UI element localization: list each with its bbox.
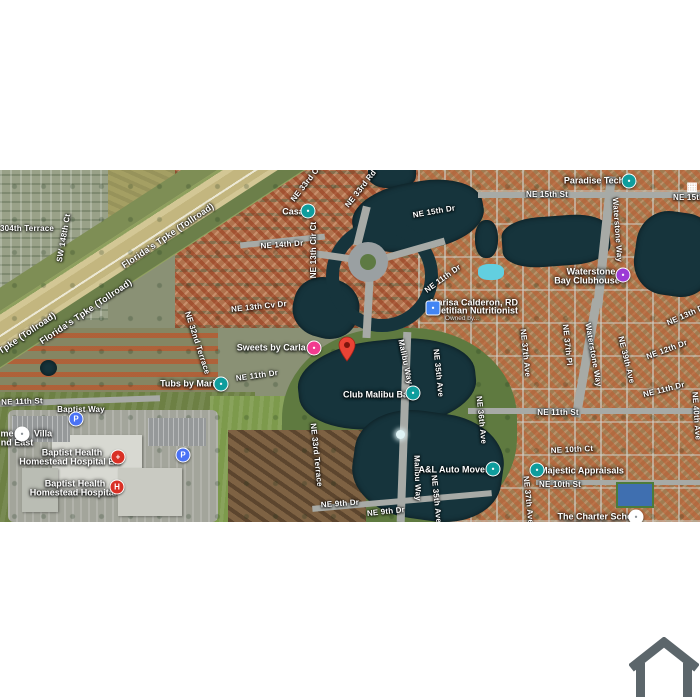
club-malibu-bay-poi-icon[interactable]: • <box>406 386 421 401</box>
road-label: NE 32nd Terrace <box>183 311 211 376</box>
road-label: NE 9th Dr <box>367 506 406 518</box>
er-poi-icon[interactable]: + <box>111 450 126 465</box>
house-logo <box>629 637 699 697</box>
road-label: NE 33rd Rd <box>344 170 378 209</box>
sweets-poi-icon[interactable]: • <box>307 341 322 356</box>
dietitian-poi-icon[interactable]: • <box>426 301 441 316</box>
tubs-poi-icon[interactable]: • <box>214 377 229 392</box>
road-label: NE 39th Ave <box>616 336 635 385</box>
poi-label-club-malibu-bay[interactable]: Club Malibu Bay <box>343 391 413 400</box>
road-label: SW 148th Ct <box>56 213 72 263</box>
dropped-pin[interactable] <box>338 336 356 367</box>
road-label: NE 15th Dr <box>412 204 456 219</box>
road-label: Florida's Tpke (Tollroad) <box>120 202 215 270</box>
poi-label-paradise-tech[interactable]: Paradise Tech <box>564 177 624 186</box>
road-label: NE 10th Ct <box>551 445 594 455</box>
poi-label-sweets[interactable]: Sweets by Carla G <box>237 344 316 353</box>
apartments-grid-icon[interactable]: ▦ <box>686 180 699 193</box>
hospital-poi-icon[interactable]: H <box>110 480 125 495</box>
road-label: NE 13th Dr <box>666 303 700 328</box>
poi-label-movers[interactable]: A&L Auto Movers <box>418 466 493 475</box>
road-label: NE 15th St <box>673 194 700 202</box>
road-label: NE 11th St <box>537 409 579 417</box>
bottom-whitespace <box>0 522 700 700</box>
satellite-map-canvas[interactable]: 304th TerraceSW 148th CtFlorida's Tpke (… <box>0 170 700 522</box>
road-label: NE 10th St <box>539 481 581 489</box>
road-label: NE 36th Ave <box>474 396 487 445</box>
road-label: NE 37th Pl <box>561 324 573 366</box>
road-label: NE 40th Ave <box>690 392 700 441</box>
movers-poi-icon[interactable]: • <box>486 462 501 477</box>
casa-poi-icon[interactable]: • <box>301 204 316 219</box>
road-label: NE 37th Ave <box>518 329 531 378</box>
road-label: NE 35th Ave <box>429 475 442 522</box>
road-label: NE 12th Dr <box>645 339 688 361</box>
top-whitespace <box>0 0 700 170</box>
road-label: NE 11th St <box>1 397 43 406</box>
road-label: 304th Terrace <box>0 225 54 233</box>
house-icon <box>629 637 699 697</box>
road-label: NE 14th Dr <box>260 240 303 251</box>
school-poi-icon[interactable]: • <box>629 510 644 523</box>
screenshot-stage: 304th TerraceSW 148th CtFlorida's Tpke (… <box>0 0 700 700</box>
poi-label-clubhouse-2[interactable]: Bay Clubhouse <box>554 277 620 286</box>
poi-label-dietitian-3[interactable]: Owned by... <box>445 316 479 323</box>
road-label: NE 15th St <box>526 191 568 199</box>
parking-icon[interactable]: P <box>176 448 191 463</box>
road-label: NE 11th Dr <box>235 369 278 383</box>
road-label: Florida's Tpke (Tollroad) <box>0 311 58 379</box>
road-label: NE 11th Dr <box>423 263 462 294</box>
road-label: NE 11th Dr <box>642 381 685 399</box>
parking-icon[interactable]: P <box>69 412 84 427</box>
map-label-overlay: 304th TerraceSW 148th CtFlorida's Tpke (… <box>0 170 700 522</box>
road-label: NE 33rd Ct <box>290 170 323 203</box>
majestic-poi-icon[interactable]: • <box>530 463 545 478</box>
road-label: NE 13th Cir Ct <box>310 222 318 279</box>
paradise-tech-poi-icon[interactable]: • <box>622 174 637 189</box>
road-label: NE 9th Dr <box>321 499 360 510</box>
clubhouse-poi-icon[interactable]: • <box>616 268 631 283</box>
road-label: Waterstone Way <box>611 198 623 263</box>
road-label: NE 13th Cv Dr <box>231 300 287 314</box>
poi-label-majestic[interactable]: Majestic Appraisals <box>540 467 624 476</box>
poi-label-er-2[interactable]: Homestead Hospital ER <box>19 458 121 467</box>
poi-label-hospital-2[interactable]: Homestead Hospital <box>30 489 117 498</box>
poi-label-school-2[interactable]: at Waterstone <box>562 522 621 523</box>
road-label: NE 33rd Terrace <box>309 423 324 487</box>
poi-label-tubs[interactable]: Tubs by Maria <box>160 380 220 389</box>
road-label: Waterstone Way <box>583 323 602 388</box>
poi-label-villa-2[interactable]: Villa <box>34 430 52 439</box>
villa-poi-icon[interactable]: • <box>15 427 30 442</box>
road-label: NE 35th Ave <box>431 349 444 398</box>
road-label: NE 37th Ave <box>521 476 534 522</box>
road-label: Malibu Way <box>412 455 422 501</box>
road-label: Malibu Way <box>396 339 413 385</box>
